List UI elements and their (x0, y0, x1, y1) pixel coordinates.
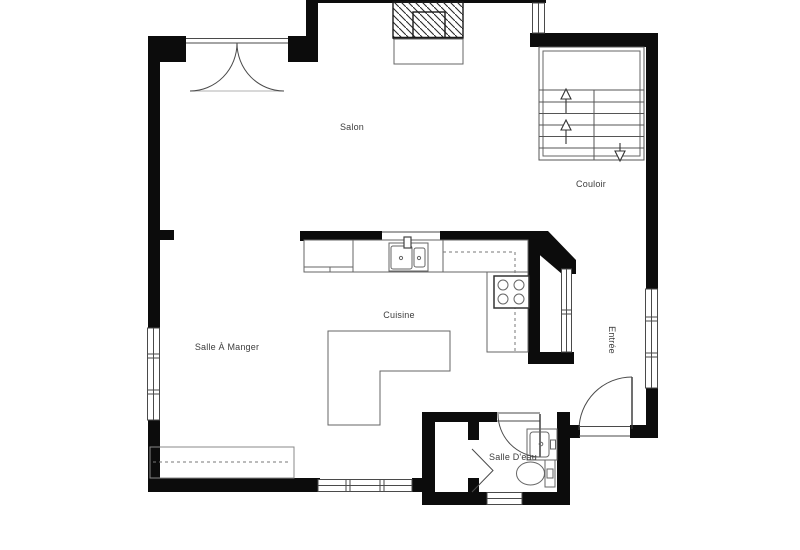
room-label-salon: Salon (340, 122, 364, 132)
bathroom-door (497, 413, 540, 457)
floorplan-canvas: Salon Couloir Cuisine Salle À Manger Ent… (0, 0, 800, 550)
room-label-cuisine: Cuisine (383, 310, 414, 320)
fireplace (393, 2, 463, 64)
window-bathroom (487, 493, 522, 505)
window-right-wall (646, 289, 658, 388)
room-label-entree: Entrée (607, 326, 617, 354)
kitchen-island (328, 331, 450, 425)
entry-door (579, 377, 632, 436)
room-label-couloir: Couloir (576, 179, 606, 189)
window-left-wall (148, 328, 160, 420)
stairs-up-arrow (561, 89, 571, 144)
chimney-hatched (393, 2, 463, 38)
floorplan-drawing (0, 0, 800, 550)
room-label-salle-deau: Salle D'eau (489, 452, 537, 462)
french-doors (186, 39, 288, 92)
stove (494, 276, 529, 308)
hearth (394, 39, 463, 64)
room-label-salle-a-manger: Salle À Manger (195, 342, 259, 352)
toilet (517, 460, 556, 487)
staircase (539, 47, 644, 161)
window-top-right (533, 3, 545, 33)
buffet-cabinet (150, 447, 294, 478)
window-bottom-wall (318, 480, 412, 492)
window-entree-left (562, 269, 572, 352)
stairs-down-arrow (615, 143, 625, 161)
